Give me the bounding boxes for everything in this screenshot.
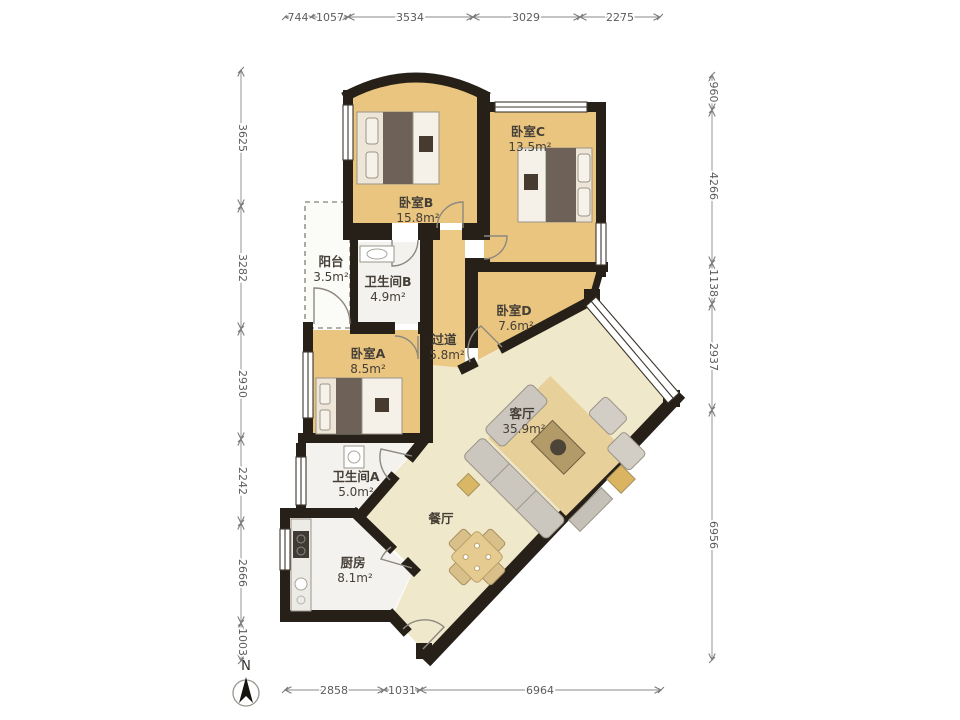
window-icon <box>296 457 306 505</box>
svg-text:卫生间A: 卫生间A <box>332 469 380 484</box>
svg-text:卧室C: 卧室C <box>511 124 545 139</box>
svg-text:35.9m²: 35.9m² <box>502 422 545 436</box>
dim-label: 3625 <box>236 124 249 152</box>
svg-text:15.8m²: 15.8m² <box>396 211 439 225</box>
dim-label: 960 <box>707 82 720 103</box>
floor-plan-canvas: 卧室B 15.8m² 卧室C 13.5m² 阳台 3.5m² 卫生间B 4.9m… <box>0 0 960 720</box>
dim-label: 6964 <box>526 684 554 697</box>
dim-label: 2275 <box>606 11 634 24</box>
svg-text:阳台: 阳台 <box>318 254 343 269</box>
dim-label: 2937 <box>707 343 720 371</box>
window-icon <box>303 352 313 418</box>
svg-text:8.5m²: 8.5m² <box>350 362 386 376</box>
dim-label: 1138 <box>707 269 720 297</box>
window-icon <box>495 102 587 112</box>
svg-text:卧室B: 卧室B <box>399 195 434 210</box>
svg-text:8.1m²: 8.1m² <box>337 571 373 585</box>
dim-label: 1003 <box>236 628 249 656</box>
svg-text:5.8m²: 5.8m² <box>429 348 465 362</box>
window-icon <box>343 105 353 160</box>
north-label: N <box>241 659 251 674</box>
svg-text:4.9m²: 4.9m² <box>370 290 406 304</box>
dim-label: 744 <box>288 11 309 24</box>
kitchen-sink-icon <box>295 578 307 590</box>
room-label-dining-room: 餐厅 <box>427 511 454 526</box>
dim-label: 3534 <box>396 11 424 24</box>
dim-label: 6956 <box>707 521 720 549</box>
svg-text:卧室A: 卧室A <box>351 346 386 361</box>
sink-icon <box>360 246 394 262</box>
svg-text:13.5m²: 13.5m² <box>508 140 551 154</box>
svg-text:餐厅: 餐厅 <box>427 511 454 526</box>
svg-text:5.0m²: 5.0m² <box>338 485 374 499</box>
window-icon <box>280 529 290 570</box>
bed-icon <box>316 378 402 434</box>
dim-label: 3282 <box>236 254 249 282</box>
svg-text:3.5m²: 3.5m² <box>313 270 349 284</box>
washer-icon <box>344 446 364 468</box>
dim-label: 2666 <box>236 559 249 587</box>
window-icon <box>596 223 606 265</box>
svg-text:7.6m²: 7.6m² <box>498 319 534 333</box>
kitchen-counter-icon <box>291 519 311 611</box>
svg-text:厨房: 厨房 <box>340 555 365 570</box>
dim-label: 2930 <box>236 370 249 398</box>
bed-icon <box>518 148 592 222</box>
svg-text:卧室D: 卧室D <box>496 303 531 318</box>
dim-label: 4266 <box>707 172 720 200</box>
svg-text:卫生间B: 卫生间B <box>364 274 411 289</box>
dim-label: 1031 <box>388 684 416 697</box>
dim-label: 2858 <box>320 684 348 697</box>
bed-icon <box>357 112 439 184</box>
svg-text:过道: 过道 <box>431 332 457 347</box>
dim-label: 2242 <box>236 467 249 495</box>
floor-plan-page: 卧室B 15.8m² 卧室C 13.5m² 阳台 3.5m² 卫生间B 4.9m… <box>0 0 960 720</box>
north-arrow-icon: N <box>233 659 259 706</box>
dim-label: 3029 <box>512 11 540 24</box>
svg-text:客厅: 客厅 <box>508 406 535 421</box>
dim-label: 1057 <box>316 11 344 24</box>
